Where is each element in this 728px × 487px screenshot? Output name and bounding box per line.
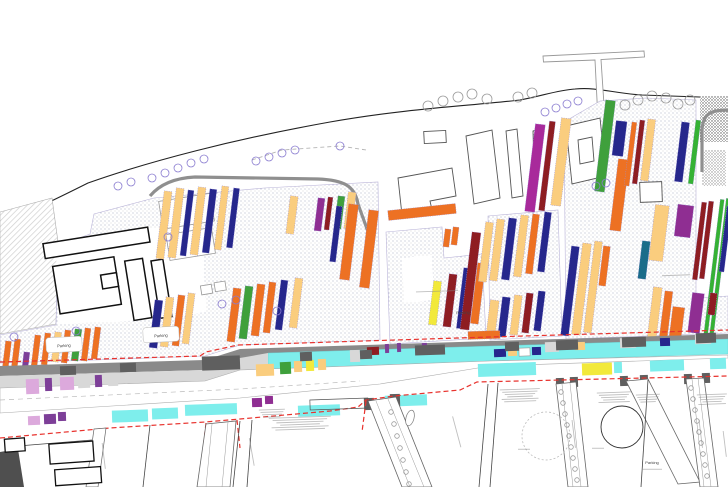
road-block bbox=[360, 350, 372, 359]
illegible-text-line bbox=[262, 414, 282, 416]
tree-icon bbox=[148, 174, 156, 182]
tree-icon bbox=[482, 94, 492, 104]
road-block bbox=[60, 366, 76, 376]
illegible-text-line bbox=[502, 391, 537, 393]
illegible-text-line bbox=[275, 428, 325, 431]
median-segment bbox=[519, 348, 530, 356]
illegible-text-line bbox=[603, 399, 625, 401]
median-segment bbox=[385, 344, 389, 353]
hatched-embankment bbox=[0, 198, 58, 334]
median-segment bbox=[318, 359, 326, 370]
illegible-text-line bbox=[276, 421, 323, 424]
tree-icon bbox=[438, 96, 448, 106]
median-segment bbox=[350, 350, 360, 362]
tree-icon bbox=[161, 169, 169, 177]
platform-segment bbox=[582, 362, 612, 375]
median-segment bbox=[532, 347, 541, 355]
median-segment bbox=[108, 374, 118, 386]
road-block bbox=[622, 337, 646, 348]
platform-segment bbox=[112, 409, 148, 422]
tree-icon bbox=[423, 101, 433, 111]
tree-icon bbox=[174, 164, 182, 172]
tree-icon bbox=[467, 89, 477, 99]
road-block bbox=[202, 355, 240, 370]
median-segment bbox=[26, 379, 40, 394]
parking-label: Parking bbox=[154, 333, 168, 339]
illegible-text-line bbox=[500, 388, 540, 390]
illegible-text-line bbox=[452, 416, 461, 447]
parking-label: Parking bbox=[645, 460, 659, 465]
road-block bbox=[120, 363, 136, 373]
tree-icon bbox=[114, 182, 122, 190]
masterplan-stage: ParkingParkingParkingParking bbox=[0, 0, 728, 487]
tree-icon bbox=[453, 92, 463, 102]
illegible-text-block bbox=[518, 449, 530, 450]
platform-segment bbox=[44, 414, 56, 424]
road-block bbox=[415, 344, 445, 355]
median-segment bbox=[60, 377, 74, 390]
tree-icon bbox=[252, 157, 260, 165]
white-clearing-center bbox=[402, 255, 434, 303]
median-segment bbox=[256, 364, 274, 377]
illegible-text-line bbox=[273, 418, 328, 421]
median-segment bbox=[294, 361, 302, 372]
tree-icon bbox=[541, 108, 549, 116]
illegible-text-line bbox=[504, 400, 536, 402]
tree-icon bbox=[291, 146, 299, 154]
illegible-text-line bbox=[502, 398, 539, 400]
illegible-text-line bbox=[598, 401, 629, 403]
illegible-text-block bbox=[723, 431, 727, 457]
illegible-text-line bbox=[592, 448, 604, 449]
illegible-text-line bbox=[272, 425, 329, 428]
illegible-text-block bbox=[597, 391, 631, 403]
tree-icon bbox=[527, 88, 537, 98]
masterplan-map: ParkingParkingParkingParking bbox=[0, 0, 728, 487]
median-segment bbox=[660, 338, 670, 346]
median-segment bbox=[494, 349, 506, 357]
platform-segment bbox=[614, 362, 622, 373]
tree-icon bbox=[574, 97, 582, 105]
tree-icon bbox=[552, 104, 560, 112]
road-block bbox=[696, 333, 716, 344]
illegible-text-block bbox=[269, 416, 331, 431]
dense-block-2 bbox=[702, 150, 726, 186]
platform-segment bbox=[650, 359, 684, 371]
illegible-text-line bbox=[259, 409, 285, 411]
parking-label: Parking bbox=[456, 310, 470, 315]
illegible-text-line bbox=[642, 469, 662, 470]
platform-segment bbox=[185, 403, 237, 416]
illegible-text-line bbox=[280, 423, 320, 425]
illegible-text-block bbox=[500, 388, 540, 402]
platform-segment bbox=[478, 362, 536, 377]
median-segment bbox=[306, 360, 314, 371]
illegible-text-line bbox=[601, 396, 627, 398]
illegible-text-block bbox=[452, 416, 461, 447]
illegible-text-block bbox=[642, 469, 662, 470]
road-block bbox=[556, 340, 578, 351]
tree-icon bbox=[563, 100, 571, 108]
platform-segment bbox=[252, 398, 262, 407]
tree-icon bbox=[187, 159, 195, 167]
illegible-text-line bbox=[505, 393, 535, 395]
road-block bbox=[505, 342, 519, 351]
median-segment bbox=[78, 376, 90, 388]
platform-segment bbox=[28, 416, 40, 425]
median-segment bbox=[280, 362, 291, 374]
illegible-text-line bbox=[597, 391, 631, 393]
platform-segment bbox=[265, 396, 273, 404]
building-bar bbox=[451, 227, 459, 246]
median-segment bbox=[45, 378, 52, 391]
illegible-text-line bbox=[723, 431, 727, 457]
median-segment bbox=[95, 375, 102, 387]
dark-road-stub bbox=[0, 449, 24, 487]
illegible-text-block bbox=[592, 448, 604, 449]
illegible-text-line bbox=[260, 411, 283, 413]
median-segment bbox=[397, 343, 401, 352]
tree-icon bbox=[200, 155, 208, 163]
illegible-text-line bbox=[599, 394, 629, 396]
platform-segment bbox=[710, 358, 726, 370]
platform-segment bbox=[298, 404, 340, 416]
illegible-text-line bbox=[518, 449, 530, 450]
plaza-circle bbox=[601, 406, 643, 448]
tree-icon bbox=[127, 178, 135, 186]
building-bar bbox=[443, 229, 451, 248]
parking-label: Parking bbox=[57, 343, 71, 349]
platform-segment bbox=[152, 408, 178, 420]
illegible-text-line bbox=[507, 396, 533, 398]
road-block bbox=[300, 352, 312, 361]
platform-segment bbox=[58, 412, 66, 421]
building-bar bbox=[468, 330, 500, 339]
